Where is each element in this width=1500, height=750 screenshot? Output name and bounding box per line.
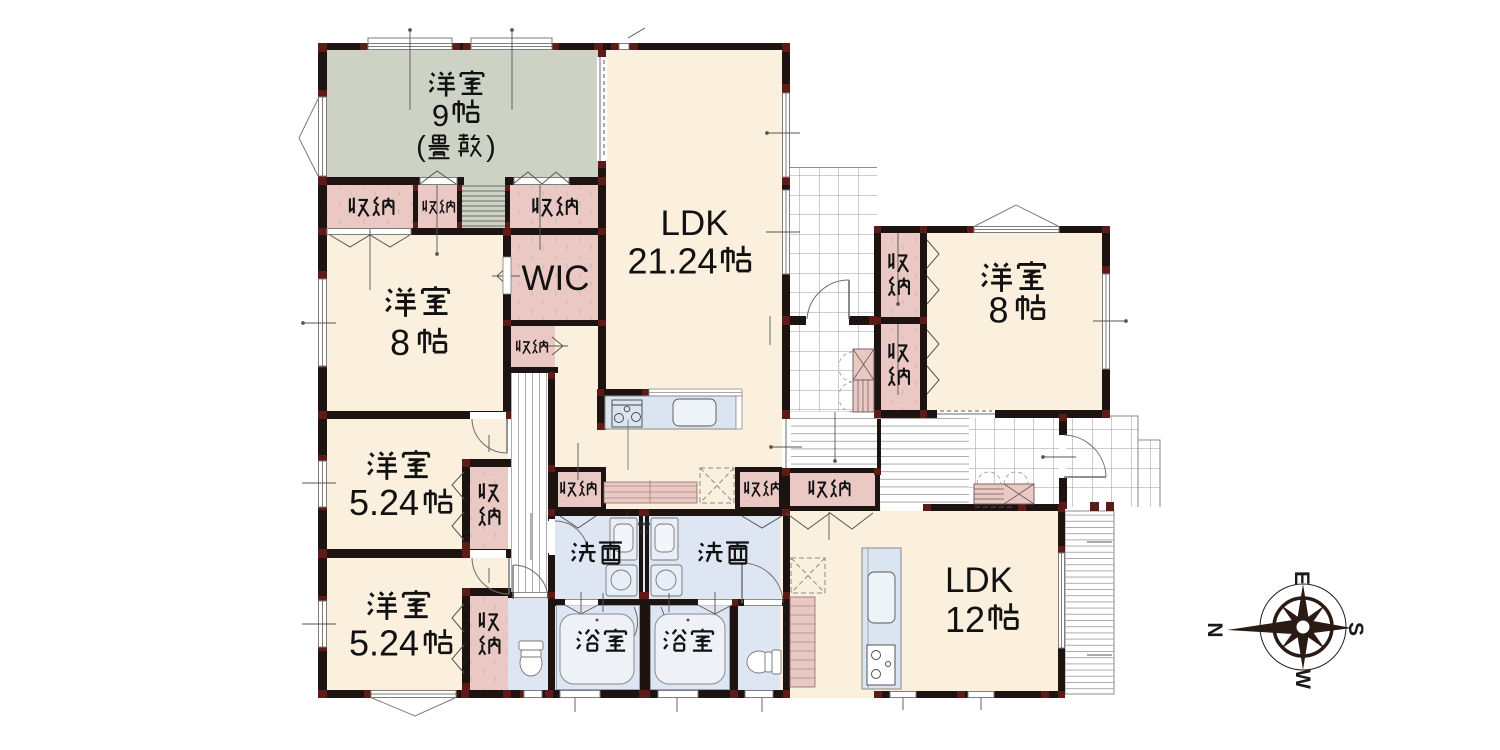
svg-text:): ) [486, 131, 496, 163]
svg-text:(: ( [416, 131, 426, 163]
svg-text:LDK: LDK [945, 561, 1013, 600]
svg-text:5.24: 5.24 [349, 623, 419, 664]
svg-text:12: 12 [945, 599, 985, 640]
svg-text:9: 9 [432, 98, 449, 133]
svg-text:LDK: LDK [660, 204, 728, 243]
svg-text:E: E [1290, 571, 1313, 585]
svg-text:8: 8 [390, 322, 410, 363]
svg-text:S: S [1344, 622, 1367, 636]
svg-text:N: N [1203, 622, 1226, 637]
svg-text:5.24: 5.24 [349, 482, 419, 523]
svg-text:21.24: 21.24 [627, 241, 717, 282]
svg-text:W: W [1291, 669, 1314, 689]
svg-text:WIC: WIC [521, 259, 589, 298]
svg-text:8: 8 [988, 290, 1008, 331]
